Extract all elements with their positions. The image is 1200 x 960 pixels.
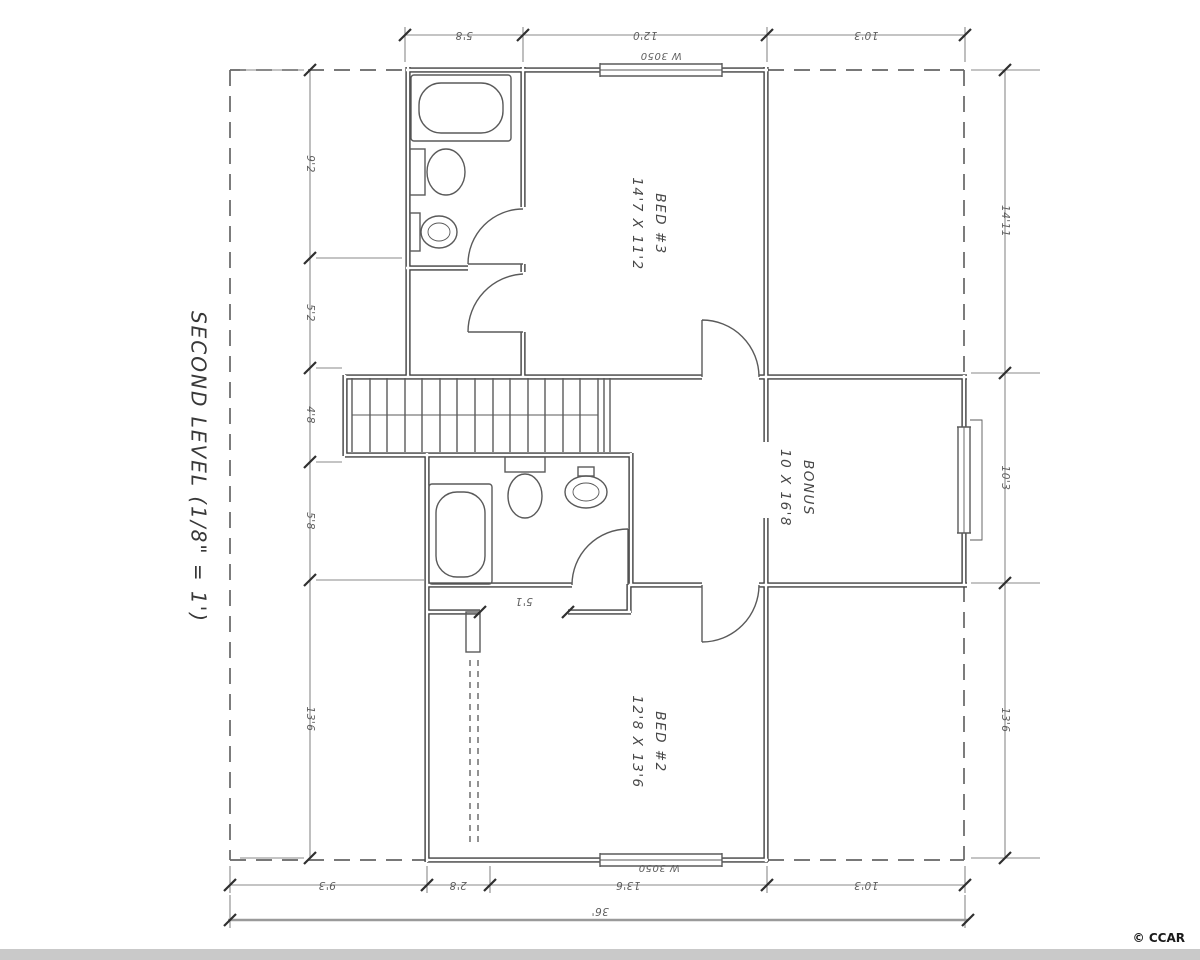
dim-overall-width: 36' [591,905,609,917]
dim-top-3: 10'3 [854,29,879,41]
dim-right-2: 10'3 [999,466,1011,491]
room-label-bonus: BONUS [800,460,816,516]
closet-shelf-dashes [466,612,480,845]
dim-right-3: 13'6 [999,708,1011,733]
window-top [600,63,722,77]
dim-left-2: 5'2 [304,304,316,322]
toilet-lower [505,457,545,518]
dim-top-2: 12'0 [633,29,658,41]
bathtub-lower [429,484,492,584]
dim-closet: 5'1 [515,595,533,607]
sink-upper [410,213,457,251]
room-dims-bonus: 10 X 16'8 [777,449,793,527]
dim-left-4: 5'8 [304,512,316,530]
floorplan-page: SECOND LEVEL (1/8" = 1') BED #3 14'7 X 1… [0,0,1200,960]
floor-plan-drawing: SECOND LEVEL (1/8" = 1') BED #3 14'7 X 1… [0,0,1200,960]
window-label-top: W 3050 [640,50,682,61]
ccar-watermark: © CCAR [1133,931,1185,945]
dim-left-3: 4'8 [304,406,316,424]
dim-top-1: 5'8 [455,29,473,41]
dim-bottom-2: 2'8 [449,879,467,891]
dim-left-1: 9'2 [304,155,316,173]
scan-edge-band [0,949,1200,960]
dim-left-5: 13'6 [304,707,316,732]
room-label-bed2: BED #2 [652,711,668,772]
dimension-ticks [224,29,1011,926]
stairs [352,378,610,452]
window-right [957,420,982,540]
dim-right-1: 14'11 [999,205,1011,237]
page-title: SECOND LEVEL (1/8" = 1') [187,311,211,623]
sink-lower [565,467,607,508]
bathtub-upper [411,75,511,141]
dim-bottom-1: 9'3 [318,879,336,891]
labels: SECOND LEVEL (1/8" = 1') BED #3 14'7 X 1… [187,29,1186,945]
door-arcs [468,209,759,642]
room-dims-bed3: 14'7 X 11'2 [629,177,645,270]
toilet-upper [410,149,465,195]
dim-bottom-3: 13'6 [616,879,641,891]
dashed-outline [230,70,964,860]
window-label-bottom: W 3050 [638,862,680,873]
room-dims-bed2: 12'8 X 13'6 [629,695,645,788]
dimension-lines [228,27,1040,928]
room-label-bed3: BED #3 [652,193,668,254]
dim-bottom-4: 10'3 [854,879,879,891]
